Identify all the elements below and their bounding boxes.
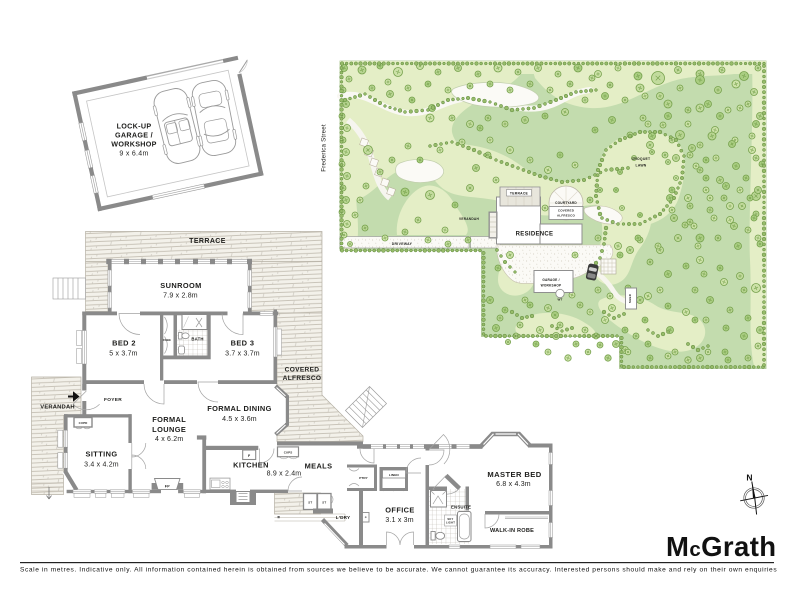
svg-text:LOCK-UP: LOCK-UP [117, 122, 152, 131]
svg-text:SUNROOM: SUNROOM [160, 281, 201, 290]
svg-text:ENSUITE: ENSUITE [451, 504, 471, 509]
svg-text:GARAGE /: GARAGE / [115, 131, 153, 140]
svg-text:LAWN: LAWN [636, 164, 647, 168]
svg-text:WALK-IN ROBE: WALK-IN ROBE [490, 528, 534, 534]
svg-text:CUPS: CUPS [284, 450, 293, 454]
svg-text:LOUNGE: LOUNGE [152, 425, 186, 434]
svg-text:FP: FP [165, 485, 170, 489]
svg-text:Scale in metres. Indicative on: Scale in metres. Indicative only. All in… [20, 567, 777, 574]
svg-text:ALFRESCO: ALFRESCO [557, 214, 576, 218]
svg-text:TERRACE: TERRACE [189, 238, 226, 245]
svg-text:MEALS: MEALS [305, 462, 333, 471]
svg-text:GARAGE /: GARAGE / [542, 278, 559, 282]
svg-text:ROBE: ROBE [163, 338, 171, 342]
svg-text:BATH: BATH [191, 337, 203, 342]
svg-text:LINEN: LINEN [389, 473, 399, 477]
svg-text:WORKSHOP: WORKSHOP [541, 284, 562, 288]
svg-text:6.8 x 4.3m: 6.8 x 4.3m [496, 481, 531, 488]
svg-text:VERANDAH: VERANDAH [459, 217, 480, 221]
svg-text:FORMAL DINING: FORMAL DINING [207, 404, 272, 413]
svg-text:COURTYARD: COURTYARD [555, 201, 577, 205]
svg-text:BED 3: BED 3 [231, 339, 255, 348]
svg-text:SKY: SKY [447, 517, 453, 521]
svg-text:3.1 x 3m: 3.1 x 3m [385, 517, 413, 524]
svg-text:Frederica Street: Frederica Street [321, 124, 328, 172]
svg-text:SHED: SHED [628, 293, 632, 303]
svg-text:5 x 3.7m: 5 x 3.7m [109, 350, 137, 357]
svg-text:4 x 6.2m: 4 x 6.2m [155, 436, 183, 443]
svg-text:9 x 6.4m: 9 x 6.4m [119, 151, 148, 158]
svg-text:TERRACE: TERRACE [510, 192, 529, 196]
svg-text:VERANDAH: VERANDAH [40, 405, 74, 411]
svg-text:COVERED: COVERED [558, 209, 575, 213]
svg-text:PTRY: PTRY [359, 476, 368, 480]
svg-text:ALFRESCO: ALFRESCO [283, 375, 322, 382]
svg-text:BED 2: BED 2 [112, 339, 136, 348]
svg-text:N: N [746, 473, 752, 483]
svg-text:8.9 x 2.4m: 8.9 x 2.4m [267, 471, 302, 478]
svg-text:RESIDENCE: RESIDENCE [516, 232, 554, 238]
svg-text:FORMAL: FORMAL [152, 415, 186, 424]
svg-text:L'DRY: L'DRY [336, 515, 350, 520]
svg-text:LIGHT: LIGHT [446, 521, 455, 525]
svg-text:ST: ST [308, 501, 312, 505]
svg-text:McGrath: McGrath [666, 531, 776, 562]
svg-text:OFFICE: OFFICE [385, 505, 415, 514]
svg-text:CROQUET: CROQUET [632, 157, 651, 161]
svg-text:CUPD: CUPD [79, 421, 88, 425]
svg-text:3.4 x 4.2m: 3.4 x 4.2m [84, 461, 119, 468]
svg-text:FOYER: FOYER [104, 397, 122, 403]
svg-text:WORKSHOP: WORKSHOP [111, 140, 157, 149]
svg-text:DRIVEWAY: DRIVEWAY [392, 242, 413, 246]
svg-text:KITCHEN: KITCHEN [233, 460, 269, 469]
svg-text:ST: ST [322, 501, 326, 505]
svg-text:COVERED: COVERED [285, 366, 320, 373]
svg-text:4.5 x 3.6m: 4.5 x 3.6m [222, 416, 257, 423]
svg-text:MASTER BED: MASTER BED [487, 470, 541, 479]
svg-text:WT: WT [557, 298, 562, 302]
svg-text:3.7 x 3.7m: 3.7 x 3.7m [225, 350, 260, 357]
svg-text:SITTING: SITTING [86, 450, 118, 459]
svg-text:7.9 x 2.8m: 7.9 x 2.8m [163, 293, 198, 300]
